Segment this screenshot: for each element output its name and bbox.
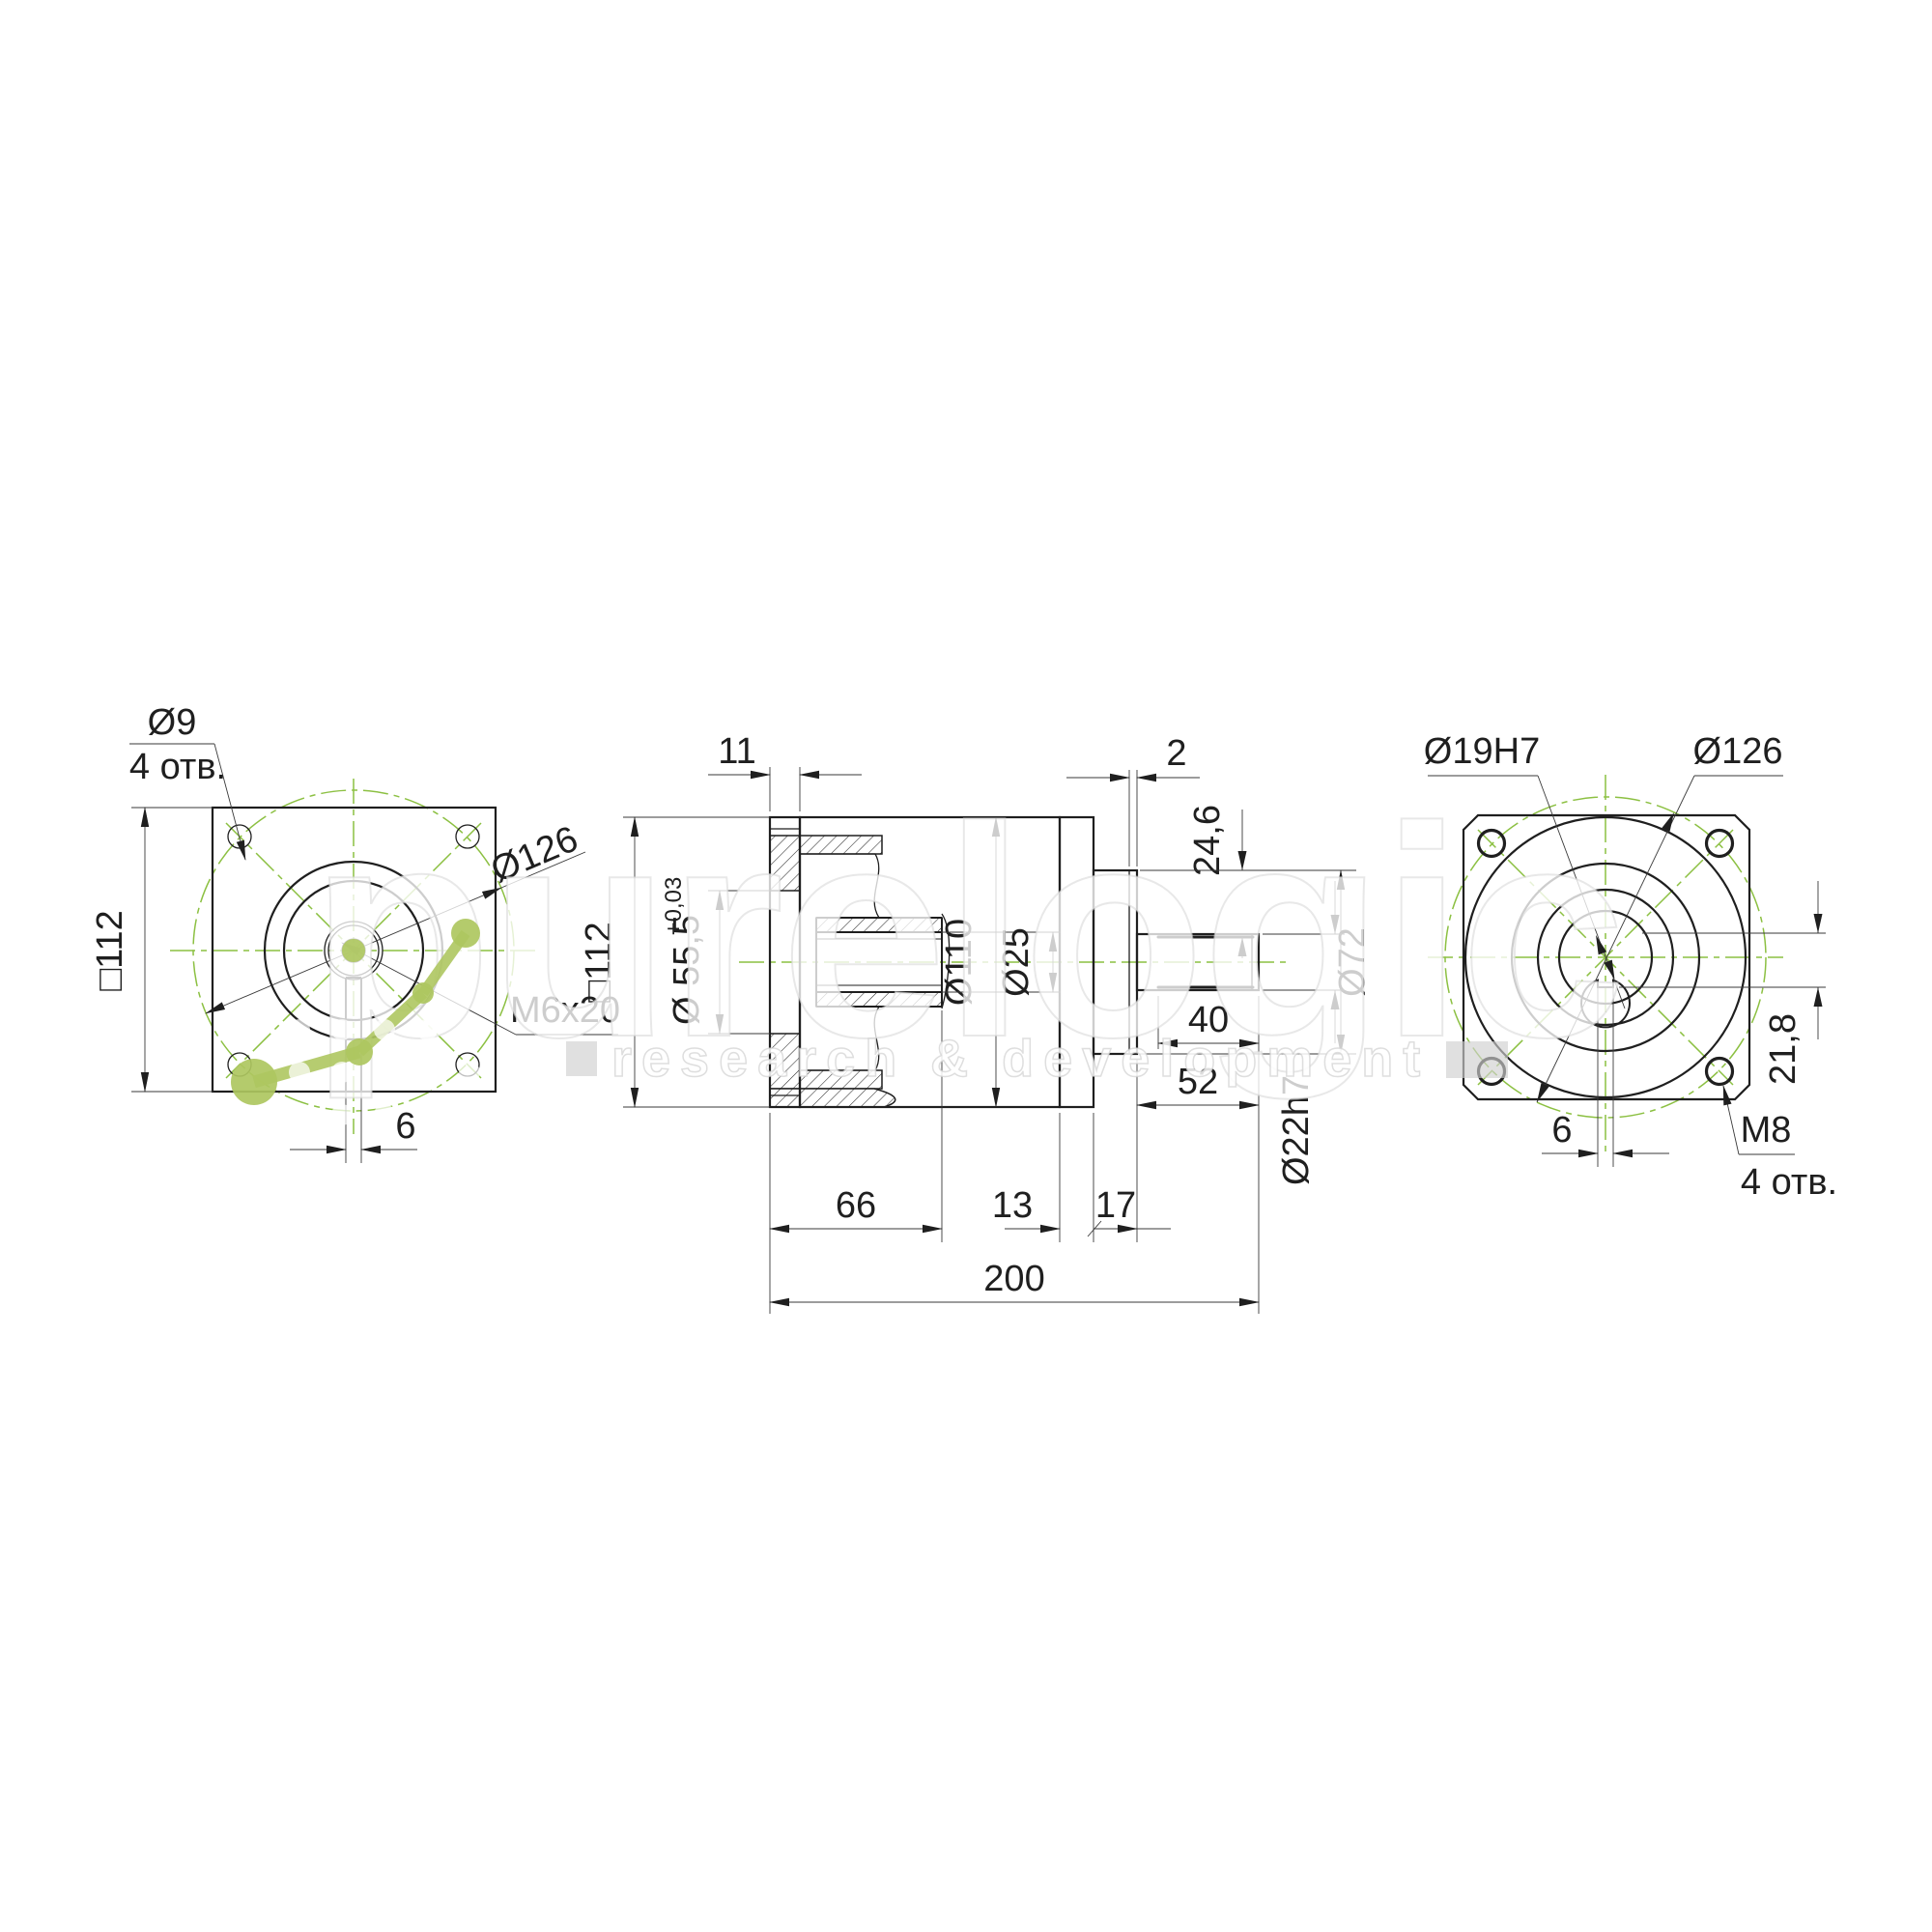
right-thread-label: M8 <box>1741 1110 1792 1151</box>
left-keyway-width-label: 6 <box>395 1106 415 1147</box>
watermark: purelogic research & development <box>231 764 1623 1125</box>
watermark-tagline: research & development <box>611 1030 1430 1088</box>
left-hole-dia-label: Ø9 <box>148 702 197 743</box>
right-keyway-height-label: 21,8 <box>1763 1013 1804 1085</box>
mid-len13-label: 13 <box>992 1185 1033 1226</box>
left-square-label: □112 <box>90 910 130 991</box>
mid-len66-label: 66 <box>836 1185 876 1226</box>
drawing-canvas: 6 □112 Ø9 4 отв. Ø126 M6x20 <box>0 0 1932 1932</box>
right-thread-count-label: 4 отв. <box>1741 1162 1837 1203</box>
right-keyway-width-label: 6 <box>1551 1110 1572 1151</box>
left-hole-count-label: 4 отв. <box>129 747 226 787</box>
watermark-block-right <box>1446 1041 1508 1078</box>
watermark-block-left <box>566 1041 597 1076</box>
mid-total-length-label: 200 <box>983 1259 1044 1299</box>
mid-len17-label: 17 <box>1095 1185 1136 1226</box>
right-bolt-circle-label: Ø126 <box>1693 731 1783 772</box>
